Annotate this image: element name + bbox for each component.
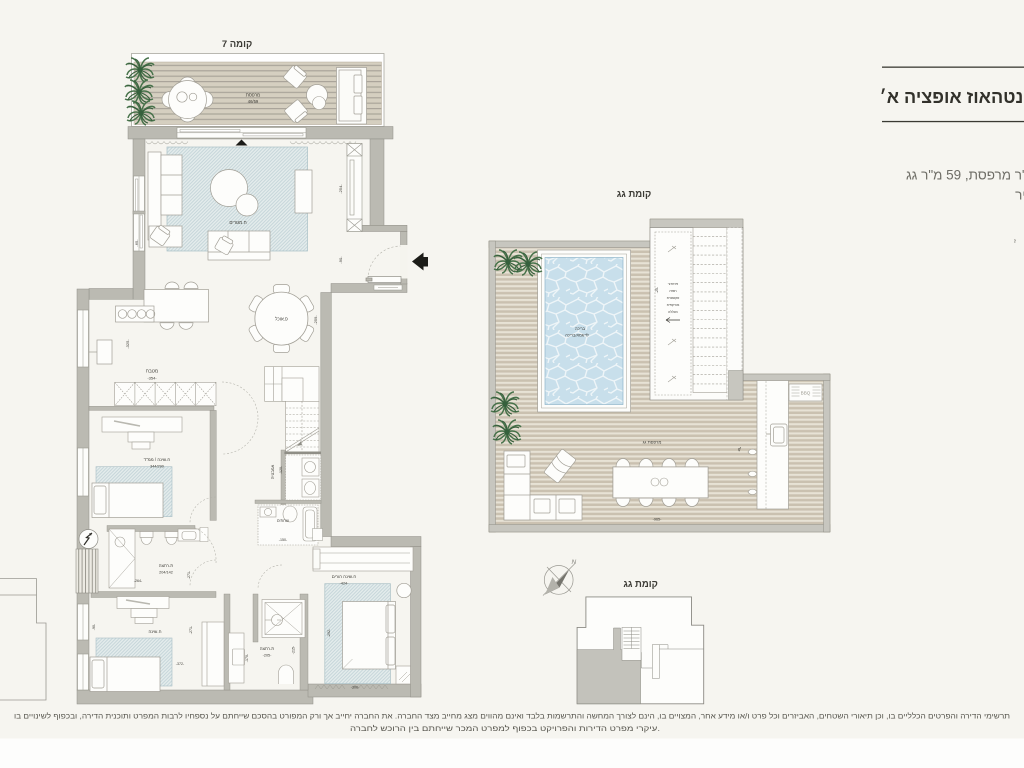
svg-text:-90-: -90- <box>92 623 96 630</box>
svg-text:לדוגמא/בריכה: לדוגמא/בריכה <box>565 333 589 338</box>
svg-text:בריכה: בריכה <box>575 326 586 331</box>
svg-text:מרפסת: מרפסת <box>246 93 260 98</box>
svg-text:עיקרי מפרט הדירות והפרויקט בכפ: עיקרי מפרט הדירות והפרויקט בכפוף למפרט ה… <box>350 724 660 733</box>
svg-text:-271-: -271- <box>189 625 193 634</box>
svg-text:-424-: -424- <box>340 582 350 586</box>
svg-text:קומה 7: קומה 7 <box>222 39 252 50</box>
svg-text:-300-: -300- <box>351 686 360 690</box>
svg-text:פרוזדור: פרוזדור <box>668 282 679 286</box>
svg-text:דירת 4 חדרים, 141 מ"ר מרפסת, 5: דירת 4 חדרים, 141 מ"ר מרפסת, 59 מ"ר גג <box>906 168 1024 183</box>
svg-text:-170-: -170- <box>245 653 249 662</box>
svg-text:ח.מגורים: ח.מגורים <box>229 220 246 225</box>
svg-text:הצללה: הצללה <box>668 310 678 314</box>
svg-text:קומת גג: קומת גג <box>617 189 652 200</box>
svg-text:תרשימי הדירה והפרטים הכלליים ב: תרשימי הדירה והפרטים הכלליים בו, וכן תיא… <box>14 712 1010 721</box>
svg-text:ח.שינה: ח.שינה <box>149 629 162 634</box>
svg-text:-254-: -254- <box>338 184 343 194</box>
svg-text:-215-: -215- <box>292 645 296 654</box>
svg-text:ת.רחצה: ת.רחצה <box>260 646 275 651</box>
svg-text:BBQ: BBQ <box>801 391 811 396</box>
svg-text:פ.אוכל: פ.אוכל <box>275 317 288 322</box>
svg-text:⚥: ⚥ <box>738 447 742 452</box>
svg-text:חופה: חופה <box>669 289 676 293</box>
svg-text:-271-: -271- <box>187 570 191 579</box>
svg-text:אמבטיה: אמבטיה <box>270 464 275 479</box>
svg-text:-205-: -205- <box>263 654 273 658</box>
svg-text:344/290: 344/290 <box>150 465 164 469</box>
svg-text:-150-: -150- <box>279 538 288 542</box>
svg-text:-354-: -354- <box>147 376 157 381</box>
svg-text:ת.רחצה: ת.רחצה <box>159 563 174 568</box>
svg-text:204/142: 204/142 <box>159 571 173 575</box>
svg-text:קומת גג: קומת גג <box>623 579 658 590</box>
svg-text:אקוסטית: אקוסטית <box>667 296 680 300</box>
svg-text:N: N <box>572 559 577 566</box>
svg-text:ז: ז <box>1014 239 1016 245</box>
svg-text:-372-: -372- <box>176 662 185 666</box>
svg-text:-325-: -325- <box>125 339 130 349</box>
svg-text:46/59: 46/59 <box>248 99 259 104</box>
svg-text:מטבח: מטבח <box>146 370 158 375</box>
svg-text:פנטהאוז אופציה א׳: פנטהאוז אופציה א׳ <box>879 87 1024 107</box>
svg-text:שרותים: שרותים <box>277 519 289 523</box>
svg-text:-25-: -25- <box>655 286 659 293</box>
svg-text:-90-: -90- <box>338 256 343 264</box>
svg-text:-259-: -259- <box>313 315 318 325</box>
svg-text:-264-: -264- <box>134 579 143 583</box>
svg-text:ח.שינה / ממ"ד: ח.שינה / ממ"ד <box>144 457 171 462</box>
svg-text:-65-: -65- <box>134 239 139 247</box>
svg-text:ח.שינה הורים: ח.שינה הורים <box>332 574 357 579</box>
svg-text:מחיר: מחיר <box>1015 188 1024 203</box>
svg-text:-120-: -120- <box>279 465 283 474</box>
svg-text:מהיקפית: מהיקפית <box>667 303 680 307</box>
svg-text:-292-: -292- <box>327 628 331 637</box>
svg-text:מרפסת גג: מרפסת גג <box>643 440 662 445</box>
svg-text:-965-: -965- <box>653 518 663 522</box>
